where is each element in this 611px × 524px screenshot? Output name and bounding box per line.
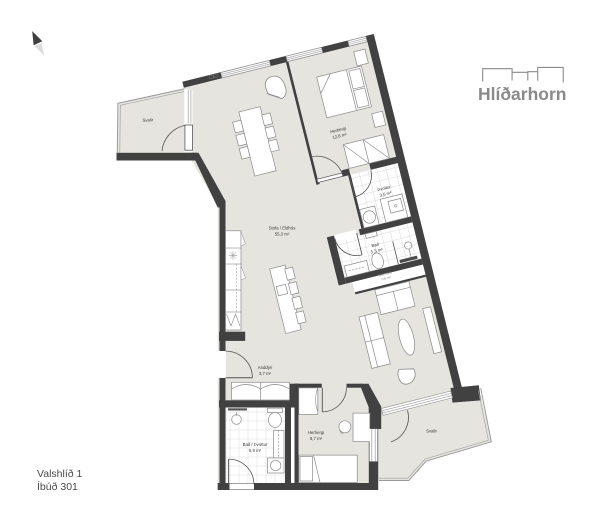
svg-text:Íbúð 301: Íbúð 301 bbox=[37, 480, 78, 493]
svg-text:5,9 m²: 5,9 m² bbox=[249, 448, 262, 453]
svg-text:55,3 m²: 55,3 m² bbox=[275, 232, 290, 237]
svg-text:Herbergi: Herbergi bbox=[308, 430, 325, 435]
svg-text:Valshlíð 1: Valshlíð 1 bbox=[37, 468, 82, 480]
svg-text:3,7 m²: 3,7 m² bbox=[259, 371, 272, 376]
svg-text:Stofa / Eldhús: Stofa / Eldhús bbox=[269, 226, 296, 231]
svg-text:Hlíðarhorn: Hlíðarhorn bbox=[478, 84, 566, 104]
svg-text:Svalir: Svalir bbox=[142, 117, 154, 123]
svg-text:8,7 m²: 8,7 m² bbox=[310, 436, 323, 441]
svg-text:Anddyri: Anddyri bbox=[258, 365, 273, 370]
svg-text:Svalir: Svalir bbox=[426, 429, 437, 434]
svg-text:Bað / Þvottur: Bað / Þvottur bbox=[243, 442, 268, 447]
